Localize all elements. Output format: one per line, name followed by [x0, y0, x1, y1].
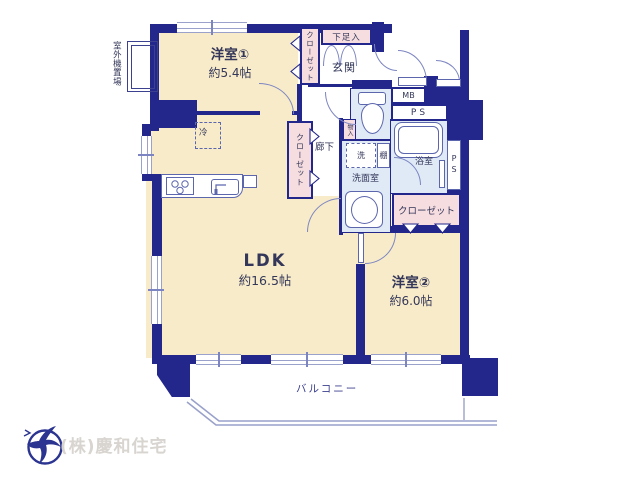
- room-western2-name: 洋室②: [375, 274, 447, 292]
- western2-name-text: 洋室②: [392, 276, 430, 291]
- balcony-label: バルコニー: [296, 384, 358, 396]
- room-western1-name: 洋室①: [195, 46, 265, 64]
- entrance-label: 玄関: [332, 62, 356, 74]
- ldk-name-text: LDK: [244, 252, 287, 270]
- room-western2-size: 約6.0帖: [375, 294, 447, 310]
- company-name: (株)慶和住宅: [60, 438, 168, 457]
- room-ldk-name: LDK: [215, 251, 315, 271]
- western2-size-text: 約6.0帖: [389, 295, 432, 308]
- outdoor-unit-label: 室外機置場: [111, 41, 120, 86]
- room-western1-size: 約5.4帖: [195, 66, 265, 82]
- western1-size-text: 約5.4帖: [208, 67, 251, 80]
- hallway-label: 廊下: [315, 143, 334, 153]
- room-ldk-size: 約16.5帖: [215, 273, 315, 289]
- balcony-railing: [0, 0, 640, 480]
- washroom-label: 洗面室: [352, 175, 379, 185]
- bathroom-label: 浴室: [415, 158, 433, 168]
- western1-name-text: 洋室①: [211, 48, 249, 63]
- ldk-size-text: 約16.5帖: [239, 274, 292, 288]
- floor-plan: クローゼット 下足入 クローゼット クローゼット 物入 MB PS PS: [0, 0, 640, 480]
